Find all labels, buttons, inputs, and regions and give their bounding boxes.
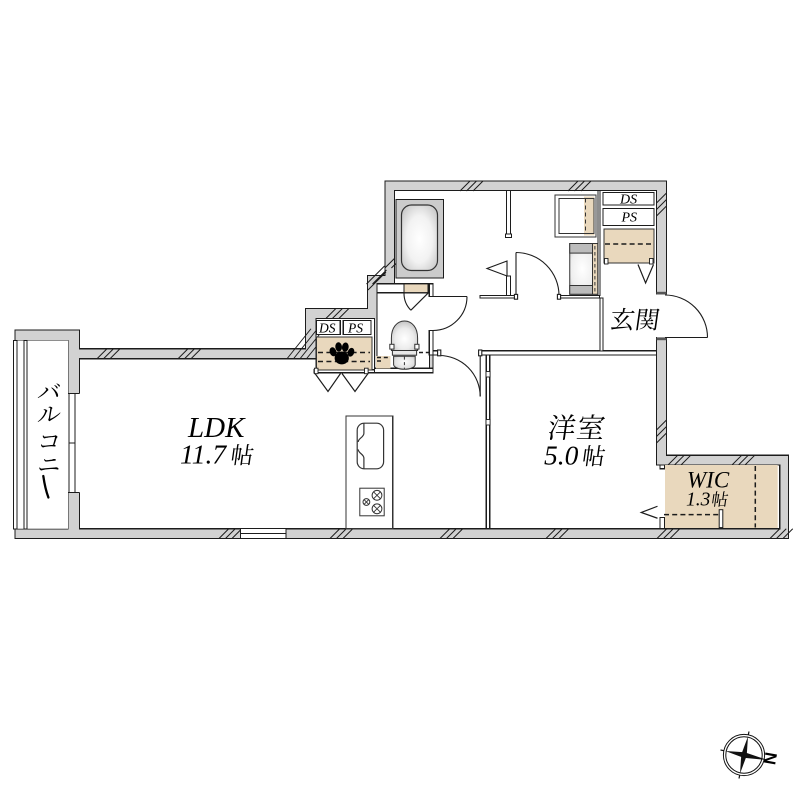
svg-text:PS: PS bbox=[347, 321, 363, 336]
svg-text:PS: PS bbox=[621, 211, 638, 226]
svg-text:DS: DS bbox=[619, 193, 637, 208]
svg-text:5.0: 5.0 bbox=[544, 440, 579, 471]
svg-text:DS: DS bbox=[318, 321, 336, 336]
svg-text:1.3: 1.3 bbox=[686, 490, 711, 511]
svg-text:11.7: 11.7 bbox=[180, 439, 227, 470]
